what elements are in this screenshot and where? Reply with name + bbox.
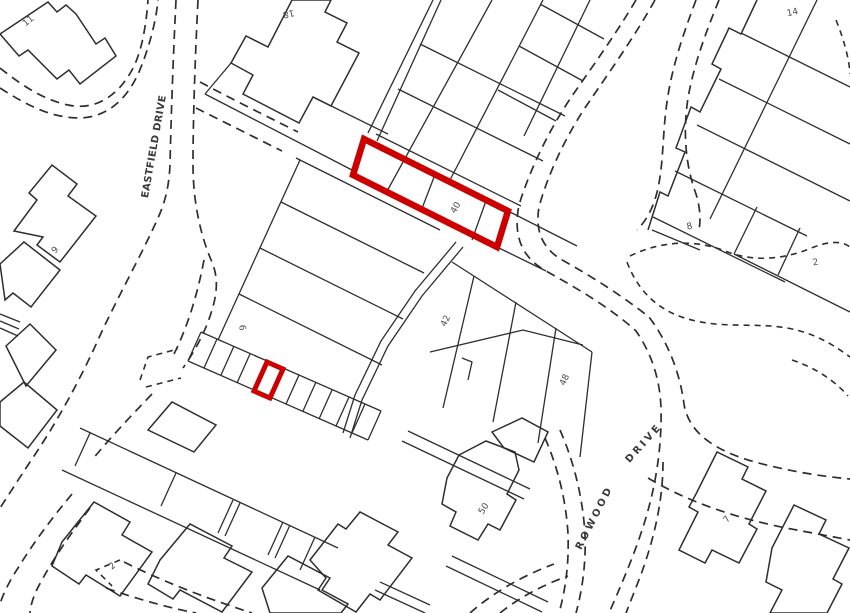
grid-col-a [386, 0, 492, 193]
middle-grid-row-2 [260, 248, 403, 319]
garage-row-top [201, 332, 381, 411]
middle-grid-row-3 [239, 294, 382, 365]
footpath-strip-east [377, 0, 441, 141]
plot-label-50: 50 [477, 501, 492, 516]
house-7-outline [679, 452, 766, 563]
grid-row-a [420, 44, 565, 116]
topright-8-bottom [652, 230, 700, 250]
path-pair-b2 [446, 566, 542, 612]
house-southeast-outline [766, 505, 849, 613]
plot-label-7: 7 [722, 514, 733, 525]
plot-label-2-southwest: 2 [107, 561, 118, 572]
rowood-west-edge-a [560, 430, 585, 613]
topright-row-3 [697, 125, 850, 201]
rowood-west-arm-east-edge [626, 462, 663, 613]
eastfield-drive-east-edge [183, 0, 216, 368]
driveway-lines-west [0, 314, 20, 336]
bottom-path-pair [375, 582, 430, 613]
house-2-southwest-outline [52, 502, 152, 596]
house-west-4-outline [0, 382, 57, 448]
corner-arc-southwest-inner [30, 508, 90, 613]
path-pair-a2 [402, 441, 524, 499]
vegetation-boundary-small [792, 360, 848, 396]
plot-label-42: 42 [439, 314, 453, 329]
topright-row-4 [675, 171, 807, 236]
terrace-dividers [75, 433, 315, 570]
map-canvas: 11181498240942485027EASTFIELD DRIVEROWOO… [0, 0, 850, 613]
plot-label-9-central: 9 [239, 323, 250, 331]
topright-row-2 [719, 79, 850, 144]
bottom-house-c [310, 512, 412, 612]
plot-label-14: 14 [786, 7, 800, 19]
house-west-2-outline [0, 242, 60, 307]
plot-label-40: 40 [449, 200, 464, 215]
plot-40-se-extension [497, 247, 546, 271]
house-18-outline [231, 0, 359, 123]
road-to-corner [92, 394, 152, 460]
terrace-north-edge [80, 428, 338, 548]
topright-road-inner [685, 0, 719, 230]
middle-grid-row-1 [281, 202, 424, 273]
garage-dividers [188, 332, 381, 440]
grid-ne-plot-c [498, 90, 556, 121]
terrace-nw-stub [148, 402, 216, 452]
rowood-west-edge-b [545, 438, 568, 613]
vegetation-boundary-upper [630, 242, 850, 258]
path-pair-a1 [408, 431, 530, 489]
topright-corner-dash [836, 20, 850, 74]
grid-ne-plot-b [519, 46, 583, 81]
access-lane-south-dashed [196, 108, 282, 151]
footpath-strip-west [368, 0, 433, 133]
plot-label-8: 8 [686, 222, 694, 233]
plot-label-2-northeast: 2 [812, 258, 819, 269]
plot-line-18a [205, 63, 231, 94]
middle-grid-west-edge [218, 160, 300, 340]
house-11-outline [0, 2, 116, 84]
plot-label-18: 18 [282, 7, 296, 19]
topright-row-5 [653, 217, 785, 282]
road-south-terrace-a [124, 562, 252, 613]
rowood-east-arm-south-edge [648, 478, 850, 540]
plot-40-divider-a [421, 172, 436, 211]
topright-south-edge [734, 254, 850, 312]
bottom-house-a [148, 524, 252, 612]
bottom-house-b [262, 556, 348, 613]
street-label-eastfield-drive: EASTFIELD DRIVE [140, 94, 169, 199]
block-42-north-edge [452, 262, 592, 352]
block-42-col-2 [493, 302, 516, 422]
garage-court-hook-a [140, 349, 178, 380]
middle-grid-east-edge-a [350, 247, 463, 438]
block-42-step-notch [462, 358, 472, 380]
access-lane-north-dashed [200, 82, 298, 132]
plot-label-9-west: 9 [50, 245, 61, 256]
plot-label-11: 11 [21, 14, 36, 29]
path-pair-b1 [452, 556, 548, 602]
house-48-outline [492, 418, 548, 462]
grid-row-b [398, 89, 543, 161]
block-42-col-1 [443, 276, 474, 408]
block-42-east-edge [580, 352, 592, 457]
topright-west-boundary [648, 0, 757, 230]
block-42-col-3 [538, 328, 556, 443]
vegetation-boundary-lower [627, 262, 850, 357]
location-plan-map: 11181498240942485027EASTFIELD DRIVEROWOO… [0, 0, 850, 613]
topright-row-1 [741, 33, 850, 87]
grid-ne-plot-a [540, 4, 604, 39]
garage-court-hook-b [146, 378, 181, 387]
terrace-south-edge [62, 470, 320, 590]
grid-col-b [450, 0, 543, 180]
topright-col-3 [778, 228, 800, 275]
highlighted-plot-40 [353, 139, 508, 247]
highlighted-garage [254, 362, 283, 398]
plot-label-48: 48 [558, 373, 572, 388]
topright-col-2 [734, 207, 757, 254]
